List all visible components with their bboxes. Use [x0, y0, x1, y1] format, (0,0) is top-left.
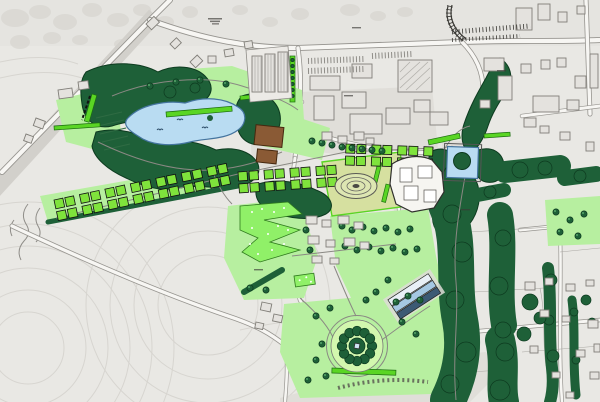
amphitheater [335, 174, 377, 199]
hedgerow-strip-4 [548, 268, 553, 402]
hatched-roof-building [398, 60, 432, 92]
circular-grove [331, 320, 383, 372]
water-basin [443, 143, 481, 181]
orchard-hatch-blocks [246, 46, 292, 102]
lake-island [207, 115, 213, 121]
play-field [294, 273, 315, 287]
grove-pavilion [354, 343, 360, 349]
site-plan-map [0, 0, 600, 402]
white-building-complex [390, 157, 444, 212]
map-canvas [0, 0, 600, 402]
